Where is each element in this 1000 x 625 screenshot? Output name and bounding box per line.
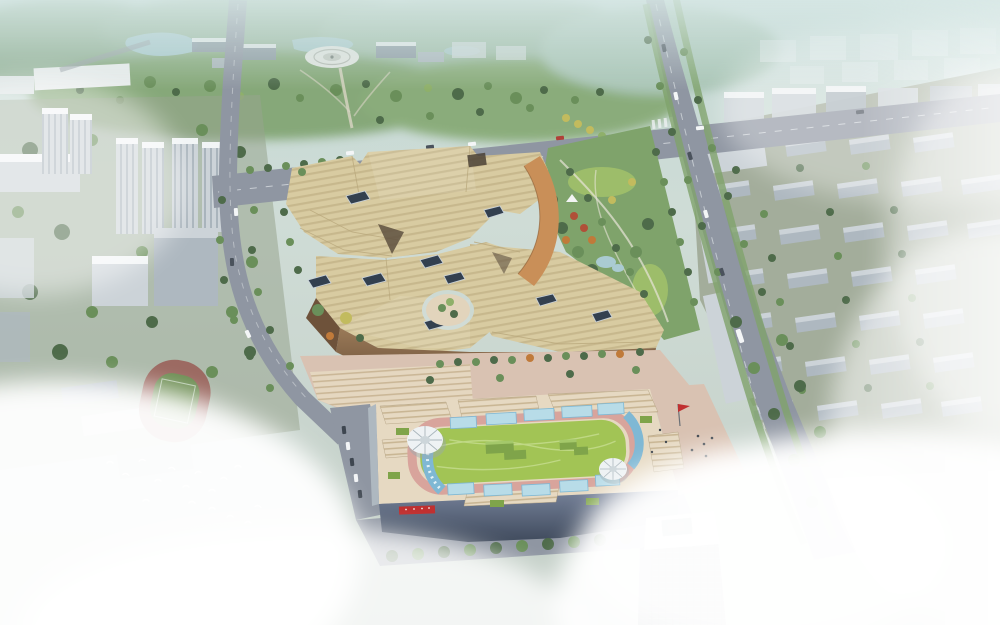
aerial-rendering	[0, 0, 1000, 625]
red-banner-sign	[399, 505, 435, 514]
circular-courtyard	[426, 294, 470, 326]
